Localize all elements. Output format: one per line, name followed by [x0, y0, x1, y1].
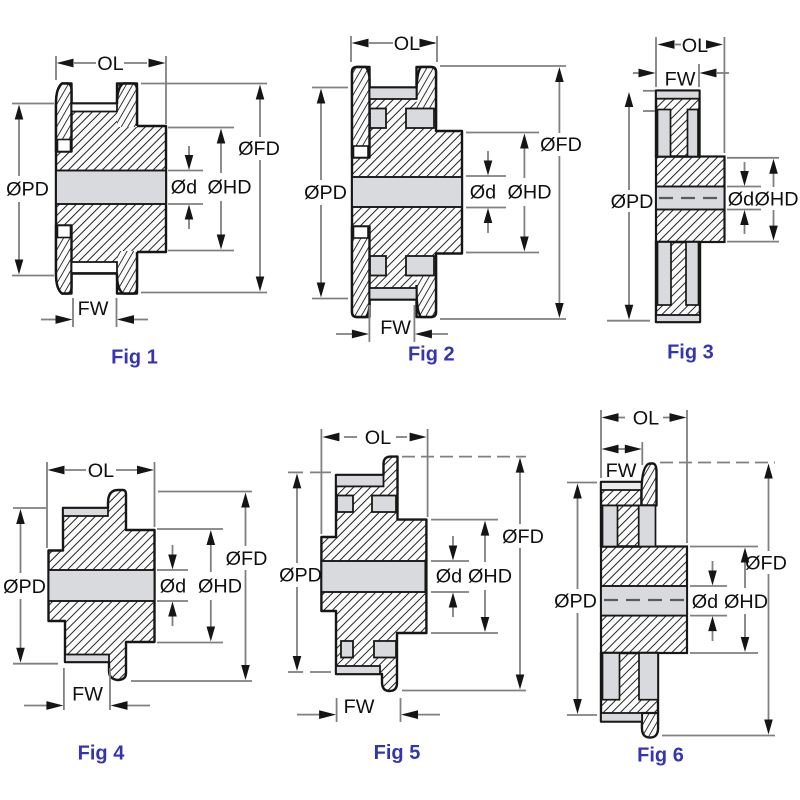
svg-text:FW: FW: [78, 298, 109, 320]
svg-text:Ød: Ød: [160, 576, 186, 598]
svg-text:OL: OL: [633, 408, 659, 430]
svg-text:OL: OL: [682, 35, 708, 57]
svg-text:Ød: Ød: [436, 566, 462, 588]
svg-text:ØFD: ØFD: [540, 134, 582, 156]
svg-text:Fig 2: Fig 2: [408, 344, 455, 366]
svg-text:FW: FW: [344, 696, 375, 718]
svg-text:ØFD: ØFD: [745, 553, 787, 575]
svg-text:ØFD: ØFD: [502, 526, 544, 548]
svg-text:Fig 6: Fig 6: [637, 745, 684, 767]
svg-text:Ød: Ød: [728, 189, 754, 211]
svg-text:ØPD: ØPD: [611, 191, 654, 213]
svg-text:FW: FW: [380, 317, 411, 339]
svg-text:Ød: Ød: [692, 591, 718, 613]
svg-text:ØHD: ØHD: [198, 576, 242, 598]
svg-text:OL: OL: [394, 33, 420, 55]
svg-text:ØPD: ØPD: [304, 182, 347, 204]
svg-text:Ød: Ød: [470, 182, 496, 204]
svg-text:Fig 3: Fig 3: [667, 342, 714, 364]
svg-text:OL: OL: [97, 53, 123, 75]
svg-text:Fig 5: Fig 5: [374, 742, 421, 764]
svg-text:ØFD: ØFD: [226, 548, 268, 570]
svg-text:Ød: Ød: [171, 177, 197, 199]
svg-text:ØPD: ØPD: [279, 565, 322, 587]
svg-text:FW: FW: [665, 69, 696, 91]
svg-text:OL: OL: [365, 427, 391, 449]
svg-text:ØPD: ØPD: [6, 179, 49, 201]
svg-text:Fig 4: Fig 4: [78, 743, 126, 765]
svg-text:ØHD: ØHD: [208, 177, 252, 199]
svg-text:OL: OL: [88, 460, 114, 482]
svg-text:ØPD: ØPD: [3, 576, 46, 598]
svg-text:FW: FW: [72, 684, 103, 706]
svg-text:ØFD: ØFD: [238, 138, 280, 160]
svg-text:FW: FW: [606, 460, 637, 482]
svg-text:ØHD: ØHD: [755, 189, 799, 211]
svg-text:ØHD: ØHD: [724, 591, 768, 613]
svg-text:Fig 1: Fig 1: [111, 347, 158, 369]
svg-text:ØPD: ØPD: [554, 591, 597, 613]
svg-text:ØHD: ØHD: [468, 566, 512, 588]
svg-text:ØHD: ØHD: [508, 182, 552, 204]
